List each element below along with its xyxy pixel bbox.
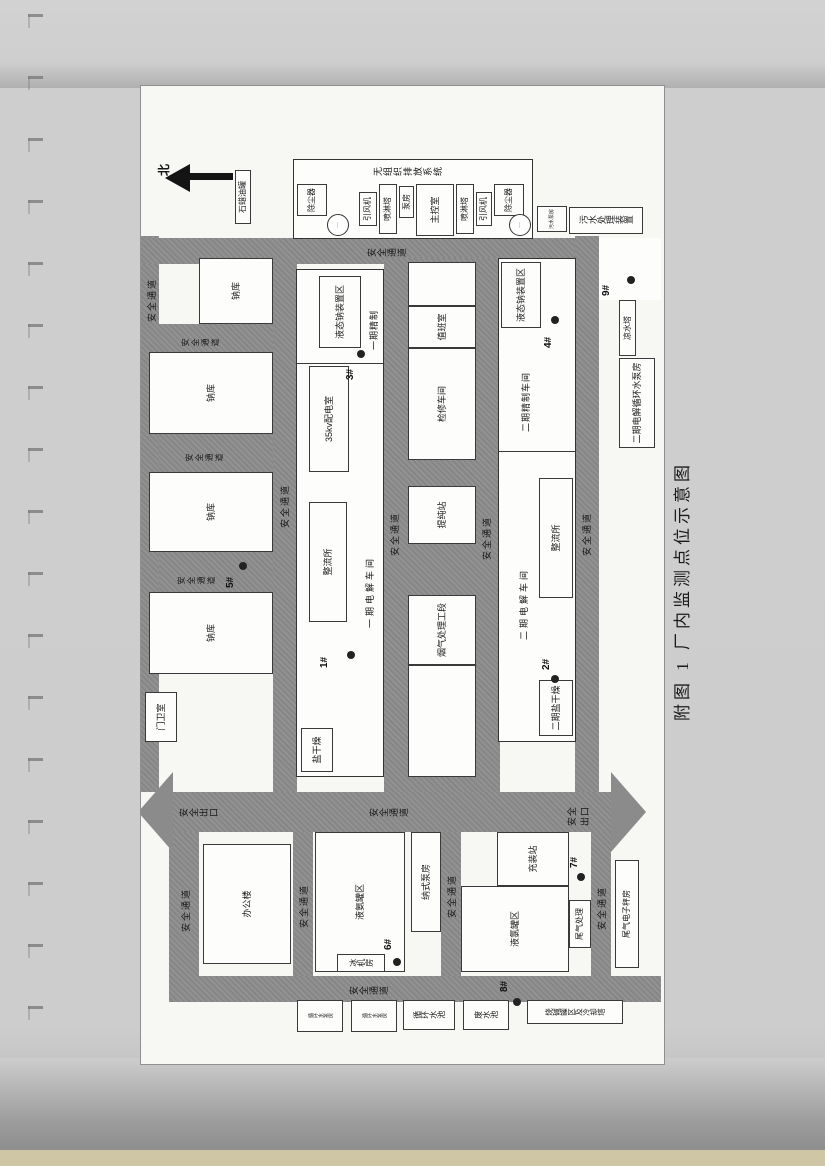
- main-control-room: 主控室: [416, 184, 454, 236]
- phase1-section-divider: [296, 363, 384, 364]
- guard-room: 门卫室: [145, 692, 177, 742]
- filling-station: 充装站: [497, 832, 569, 886]
- passage-label-nash: 安全通道: [445, 874, 458, 918]
- passage-label-bc: 安全通道: [388, 512, 401, 556]
- sodium-warehouse-2: 钠库: [149, 352, 273, 434]
- site-plan: 安全出口 安全出口 安全通道 安全通道 安全通道 安全通道 安全通道 安全通道 …: [141, 86, 664, 1064]
- road-left-boundary: [169, 976, 661, 1002]
- point-3-dot: [357, 350, 365, 358]
- sodium-warehouse-1: 钠库: [199, 258, 273, 324]
- passage-label-right: 安全通道: [367, 246, 407, 259]
- caustic-tank-area: 烧碱罐区及冷却塔: [527, 1000, 623, 1024]
- passage-label-cd: 安全通道: [480, 516, 493, 560]
- ice-machine-room: 冰机房: [337, 954, 385, 972]
- passage-label-gap3: 安全通道: [177, 575, 217, 586]
- office-building: 办公楼: [203, 844, 291, 964]
- liquid-sodium-area-1: 液态钠装置区: [319, 276, 361, 348]
- tail-gas-treatment: 尾气处理: [569, 900, 591, 948]
- exit-arrow-down: [611, 772, 646, 852]
- pump-room-small: 泵房: [399, 186, 414, 218]
- point-1-label: 1#: [319, 657, 330, 668]
- salt-drying-house: 盐干燥: [301, 728, 333, 772]
- dust-collector-2: 除尘器: [494, 184, 524, 216]
- cooling-tower: 凉水塔: [619, 300, 636, 356]
- point-9-dot: [627, 276, 635, 284]
- sewage-pump-room: 污水泵房: [537, 206, 567, 232]
- exit-label-top: 安全出口: [179, 806, 219, 819]
- draft-fan-1: 引风机: [359, 192, 377, 226]
- road-warehouse-gap-3: [159, 552, 273, 592]
- nash-pump-room: 纳式泵房: [411, 832, 441, 932]
- rectifier-station-1: 整流所: [309, 502, 347, 622]
- north-arrow-shaft: [188, 173, 233, 180]
- point-1-dot: [347, 651, 355, 659]
- point-4-dot: [551, 316, 559, 324]
- phase2-workshop-label: 二期电解车间: [517, 568, 530, 640]
- exit-arrow-up: [141, 772, 173, 852]
- spray-tower-2: 喷淋塔: [456, 184, 474, 234]
- point-9-label: 9#: [601, 285, 612, 296]
- chlorine-tank-area: 液氯罐区: [461, 886, 569, 972]
- sodium-warehouse-3: 钠库: [149, 472, 273, 552]
- service-strip-blank-2: [408, 262, 476, 306]
- circulating-water-pool: 循环水池: [403, 1000, 455, 1030]
- passage-label-left: 安全通道: [349, 984, 389, 997]
- phase2-salt-drying: 二期盐干燥: [539, 680, 573, 736]
- circulating-pump-room-1: 循环水泵房: [297, 1000, 343, 1032]
- passage-label-top-left: 安全通道: [179, 888, 192, 932]
- service-strip-blank-1: [408, 665, 476, 777]
- point-3-label: 3#: [345, 369, 356, 380]
- diagram-rotated-wrapper: 安全出口 安全出口 安全通道 安全通道 安全通道 安全通道 安全通道 安全通道 …: [141, 86, 664, 1064]
- passage-label-gap1: 安全通道: [181, 337, 221, 348]
- scan-bottom-strip: [0, 1150, 825, 1166]
- phase1-refining-label: 一期精制: [367, 310, 380, 350]
- passage-label-gap2: 安全通道: [185, 452, 225, 463]
- draft-fan-2: 引风机: [476, 192, 492, 226]
- sewage-treatment-unit: 污水处理装置: [569, 207, 643, 234]
- point-5-label: 5#: [225, 577, 236, 588]
- exit-label-bottom: 安全出口: [565, 800, 591, 826]
- spray-tower-1: 喷淋塔: [379, 184, 397, 234]
- point-2-dot: [551, 675, 559, 683]
- stack-icon-1: ···: [327, 214, 349, 236]
- north-arrow-icon: [165, 164, 190, 192]
- phase2-circulating-pump-room: 二期电解循环水泵房: [619, 358, 655, 448]
- phase2-refining-label: 二期精制车间: [519, 372, 532, 432]
- flue-gas-section: 烟气处理工段: [408, 595, 476, 665]
- passage-label-office: 安全通道: [297, 884, 310, 928]
- phase2-section-divider: [498, 451, 576, 452]
- binder-marks: [28, 14, 43, 1142]
- duty-room: 值班室: [408, 306, 476, 348]
- point-5-dot: [239, 562, 247, 570]
- ammonia-tank-area: 液氨罐区: [315, 832, 405, 972]
- purification-station: 提纯站: [408, 486, 476, 544]
- point-7-label: 7#: [569, 857, 580, 868]
- point-7-dot: [577, 873, 585, 881]
- tail-gas-scale-room: 尾气电子秤房: [615, 860, 639, 968]
- liquid-sodium-area-2: 液态钠装置区: [501, 262, 541, 328]
- point-6-dot: [393, 958, 401, 966]
- passage-label-bottom: 安全通道: [580, 512, 593, 556]
- circulating-pump-room-2: 循环水泵房: [351, 1000, 397, 1032]
- scanned-page: 安全出口 安全出口 安全通道 安全通道 安全通道 安全通道 安全通道 安全通道 …: [0, 0, 825, 1166]
- scan-bottom-shadow: [0, 1058, 825, 1150]
- sodium-warehouse-4: 钠库: [149, 592, 273, 674]
- road-between-warehouse-phase1: [273, 264, 297, 792]
- binder-marks-line: [28, 14, 30, 1142]
- figure-caption: 附图 1 厂内监测点位示意图: [668, 445, 690, 737]
- paraffin-oil-tank: 石蜡油罐: [235, 170, 251, 224]
- waste-water-pool: 废水池: [463, 1000, 509, 1030]
- point-8-label: 8#: [499, 981, 510, 992]
- point-2-label: 2#: [541, 659, 552, 670]
- stack-icon-2: ···: [509, 214, 531, 236]
- dust-collector-1: 除尘器: [297, 184, 327, 216]
- phase1-workshop-label: 一期电解车间: [363, 556, 376, 628]
- passage-label-exit-road: 安全通道: [369, 806, 409, 819]
- passage-label-tailgas: 安全通道: [595, 886, 608, 930]
- point-6-label: 6#: [383, 939, 394, 950]
- passage-label-ab: 安全通道: [278, 484, 291, 528]
- maintenance-workshop: 检修车间: [408, 348, 476, 460]
- kv35-distribution-room: 35kv配电室: [309, 366, 349, 472]
- passage-label-top-main: 安全通道: [145, 278, 158, 322]
- point-8-dot: [513, 998, 521, 1006]
- point-4-label: 4#: [543, 337, 554, 348]
- fugitive-system-title: 无组织排放系统: [373, 165, 443, 178]
- rectifier-station-2: 整流所: [539, 478, 573, 598]
